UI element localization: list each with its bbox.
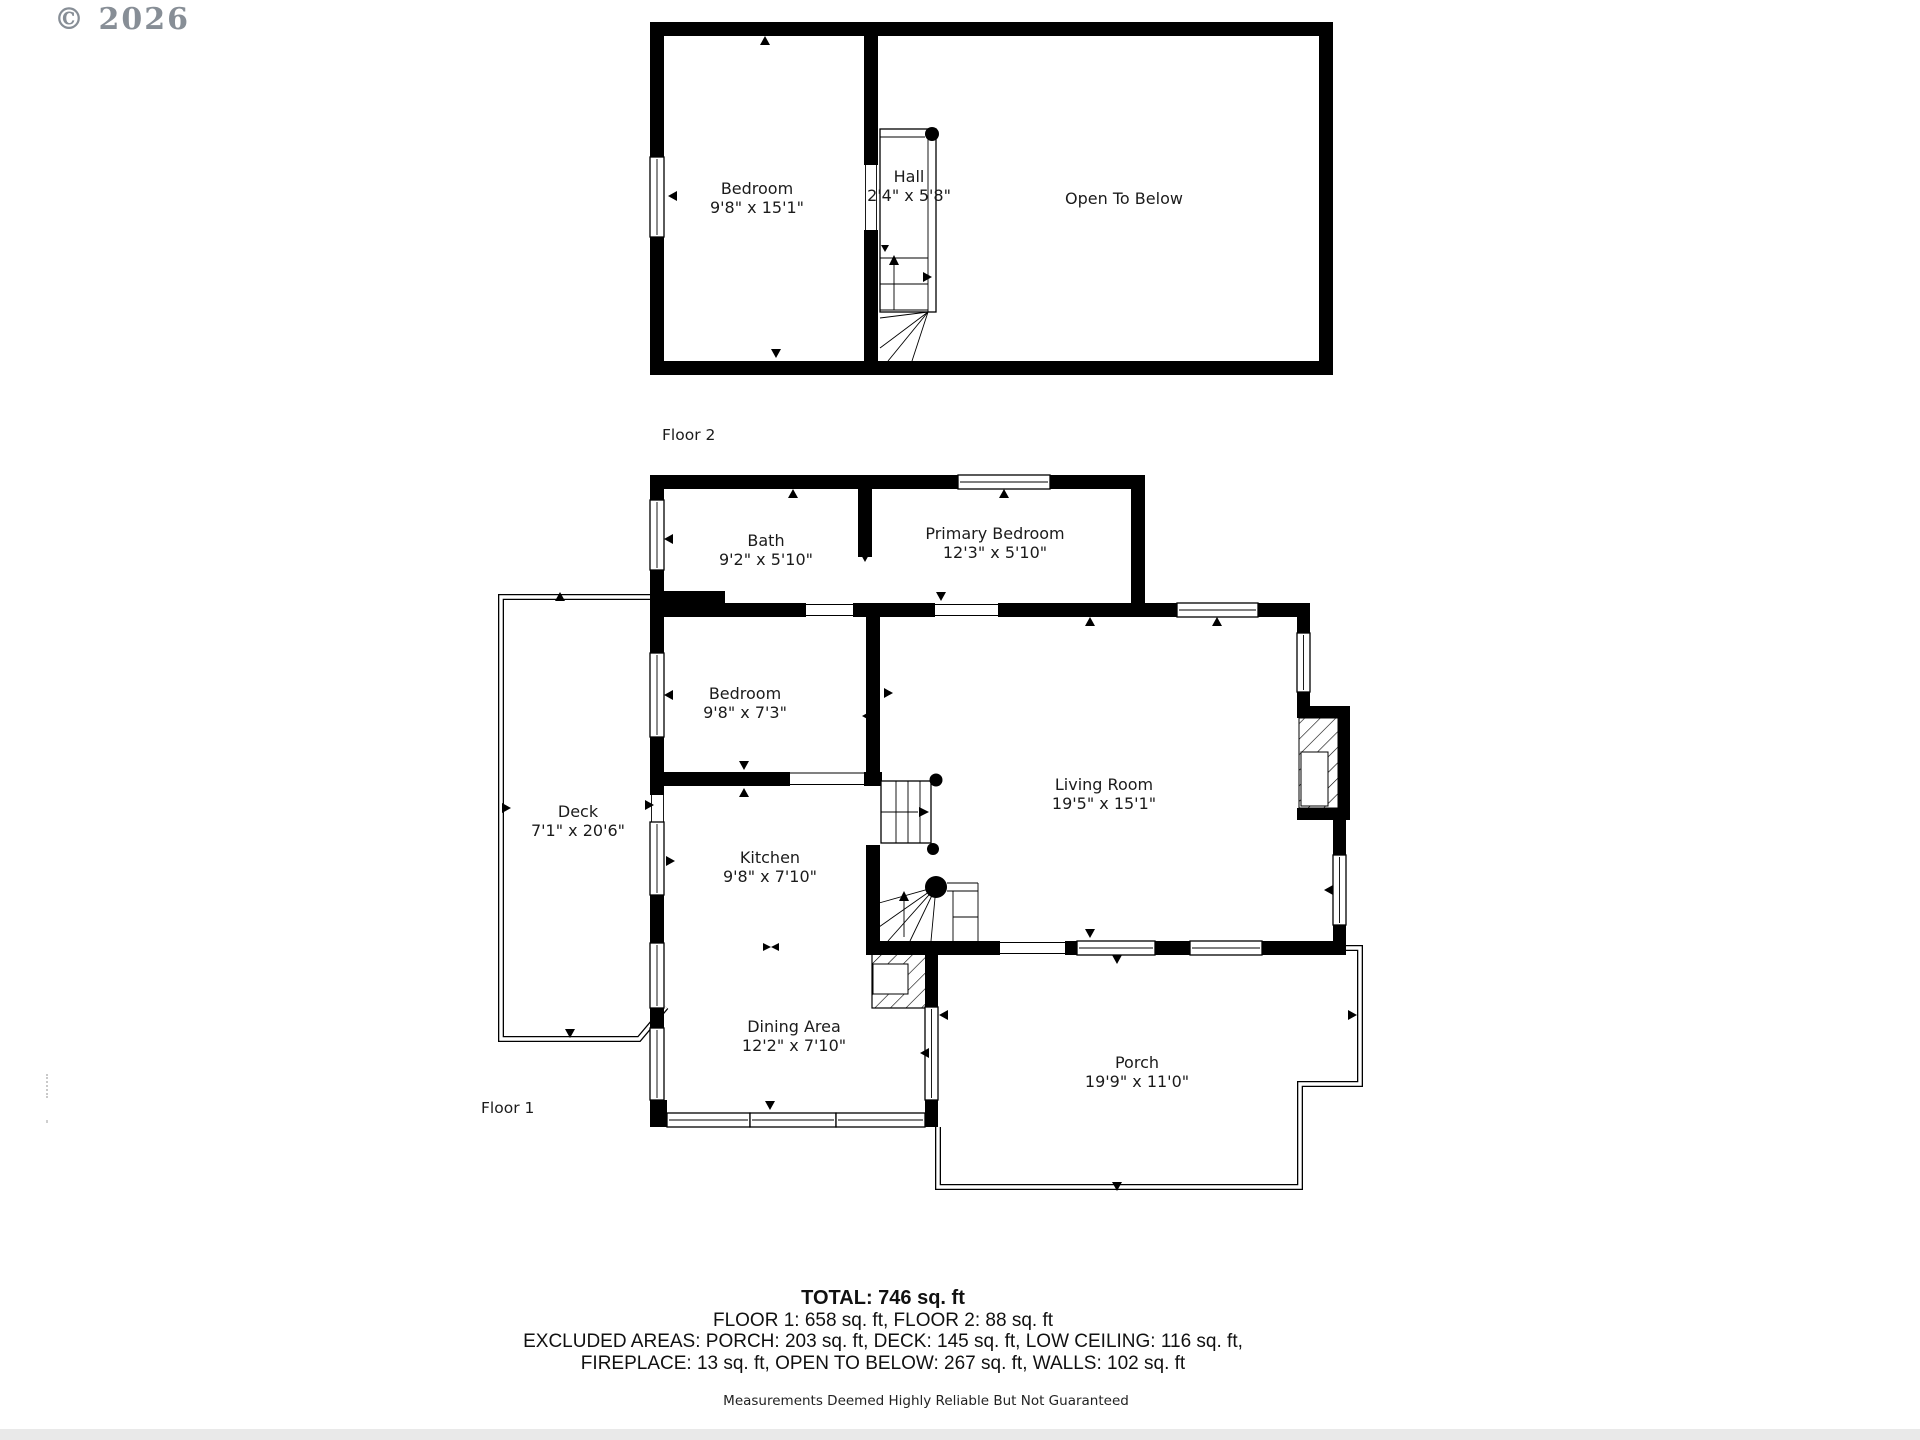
- room-dims: 19'5" x 15'1": [1052, 794, 1156, 813]
- floor1-stairs-winder-icon: [879, 876, 978, 941]
- floor1-stairs-upper-icon: [881, 774, 943, 856]
- summary-total: TOTAL: 746 sq. ft: [523, 1288, 1243, 1310]
- floor2-staircase-icon: [880, 127, 939, 361]
- bottom-strip: [0, 1429, 1920, 1440]
- summary-excluded-1: EXCLUDED AREAS: PORCH: 203 sq. ft, DECK:…: [523, 1331, 1243, 1353]
- room-label-floor2-hall: Hall 2'4" x 5'8": [867, 167, 951, 205]
- page-edge-mark: [46, 1120, 48, 1123]
- floorplan-page: © 2026 Bedroom 9'8" x 15'1" Hall 2'4" x …: [0, 0, 1920, 1440]
- floorplan-drawing: [0, 0, 1920, 1440]
- summary-floors: FLOOR 1: 658 sq. ft, FLOOR 2: 88 sq. ft: [523, 1310, 1243, 1332]
- room-name: Kitchen: [723, 848, 817, 867]
- room-label-primary-bedroom: Primary Bedroom 12'3" x 5'10": [925, 524, 1064, 562]
- room-name: Living Room: [1052, 775, 1156, 794]
- area-summary: TOTAL: 746 sq. ft FLOOR 1: 658 sq. ft, F…: [523, 1288, 1243, 1374]
- summary-excluded-2: FIREPLACE: 13 sq. ft, OPEN TO BELOW: 267…: [523, 1353, 1243, 1375]
- room-name: Hall: [867, 167, 951, 186]
- room-name: Primary Bedroom: [925, 524, 1064, 543]
- fireplace-icon: [1297, 706, 1350, 820]
- room-label-dining-area: Dining Area 12'2" x 7'10": [742, 1017, 846, 1055]
- room-name: Porch: [1085, 1053, 1189, 1072]
- room-label-open-to-below: Open To Below: [1065, 189, 1183, 208]
- room-label-living-room: Living Room 19'5" x 15'1": [1052, 775, 1156, 813]
- room-dims: 12'3" x 5'10": [925, 543, 1064, 562]
- room-dims: 19'9" x 11'0": [1085, 1072, 1189, 1091]
- room-name: Bedroom: [703, 684, 787, 703]
- room-dims: 12'2" x 7'10": [742, 1036, 846, 1055]
- room-dims: 9'2" x 5'10": [719, 550, 813, 569]
- floor1-caption: Floor 1: [481, 1099, 534, 1117]
- room-dims: 7'1" x 20'6": [531, 821, 625, 840]
- page-edge-marks: [46, 1074, 48, 1098]
- copyright-watermark: © 2026: [54, 2, 190, 37]
- room-name: Bath: [719, 531, 813, 550]
- disclaimer-text: Measurements Deemed Highly Reliable But …: [723, 1393, 1129, 1409]
- room-dims: 9'8" x 15'1": [710, 198, 804, 217]
- room-name: Deck: [531, 802, 625, 821]
- room-label-porch: Porch 19'9" x 11'0": [1085, 1053, 1189, 1091]
- floor1-plan: [501, 475, 1360, 1191]
- room-dims: 2'4" x 5'8": [867, 186, 951, 205]
- room-label-bath: Bath 9'2" x 5'10": [719, 531, 813, 569]
- room-label-deck: Deck 7'1" x 20'6": [531, 802, 625, 840]
- room-label-bedroom: Bedroom 9'8" x 7'3": [703, 684, 787, 722]
- room-name: Dining Area: [742, 1017, 846, 1036]
- floor2-caption: Floor 2: [662, 426, 715, 444]
- room-dims: 9'8" x 7'3": [703, 703, 787, 722]
- room-label-floor2-bedroom: Bedroom 9'8" x 15'1": [710, 179, 804, 217]
- room-label-kitchen: Kitchen 9'8" x 7'10": [723, 848, 817, 886]
- chimney-icon: [872, 950, 927, 1008]
- floor2-bedroom-window: [650, 157, 664, 237]
- room-dims: 9'8" x 7'10": [723, 867, 817, 886]
- room-name: Open To Below: [1065, 189, 1183, 208]
- room-name: Bedroom: [710, 179, 804, 198]
